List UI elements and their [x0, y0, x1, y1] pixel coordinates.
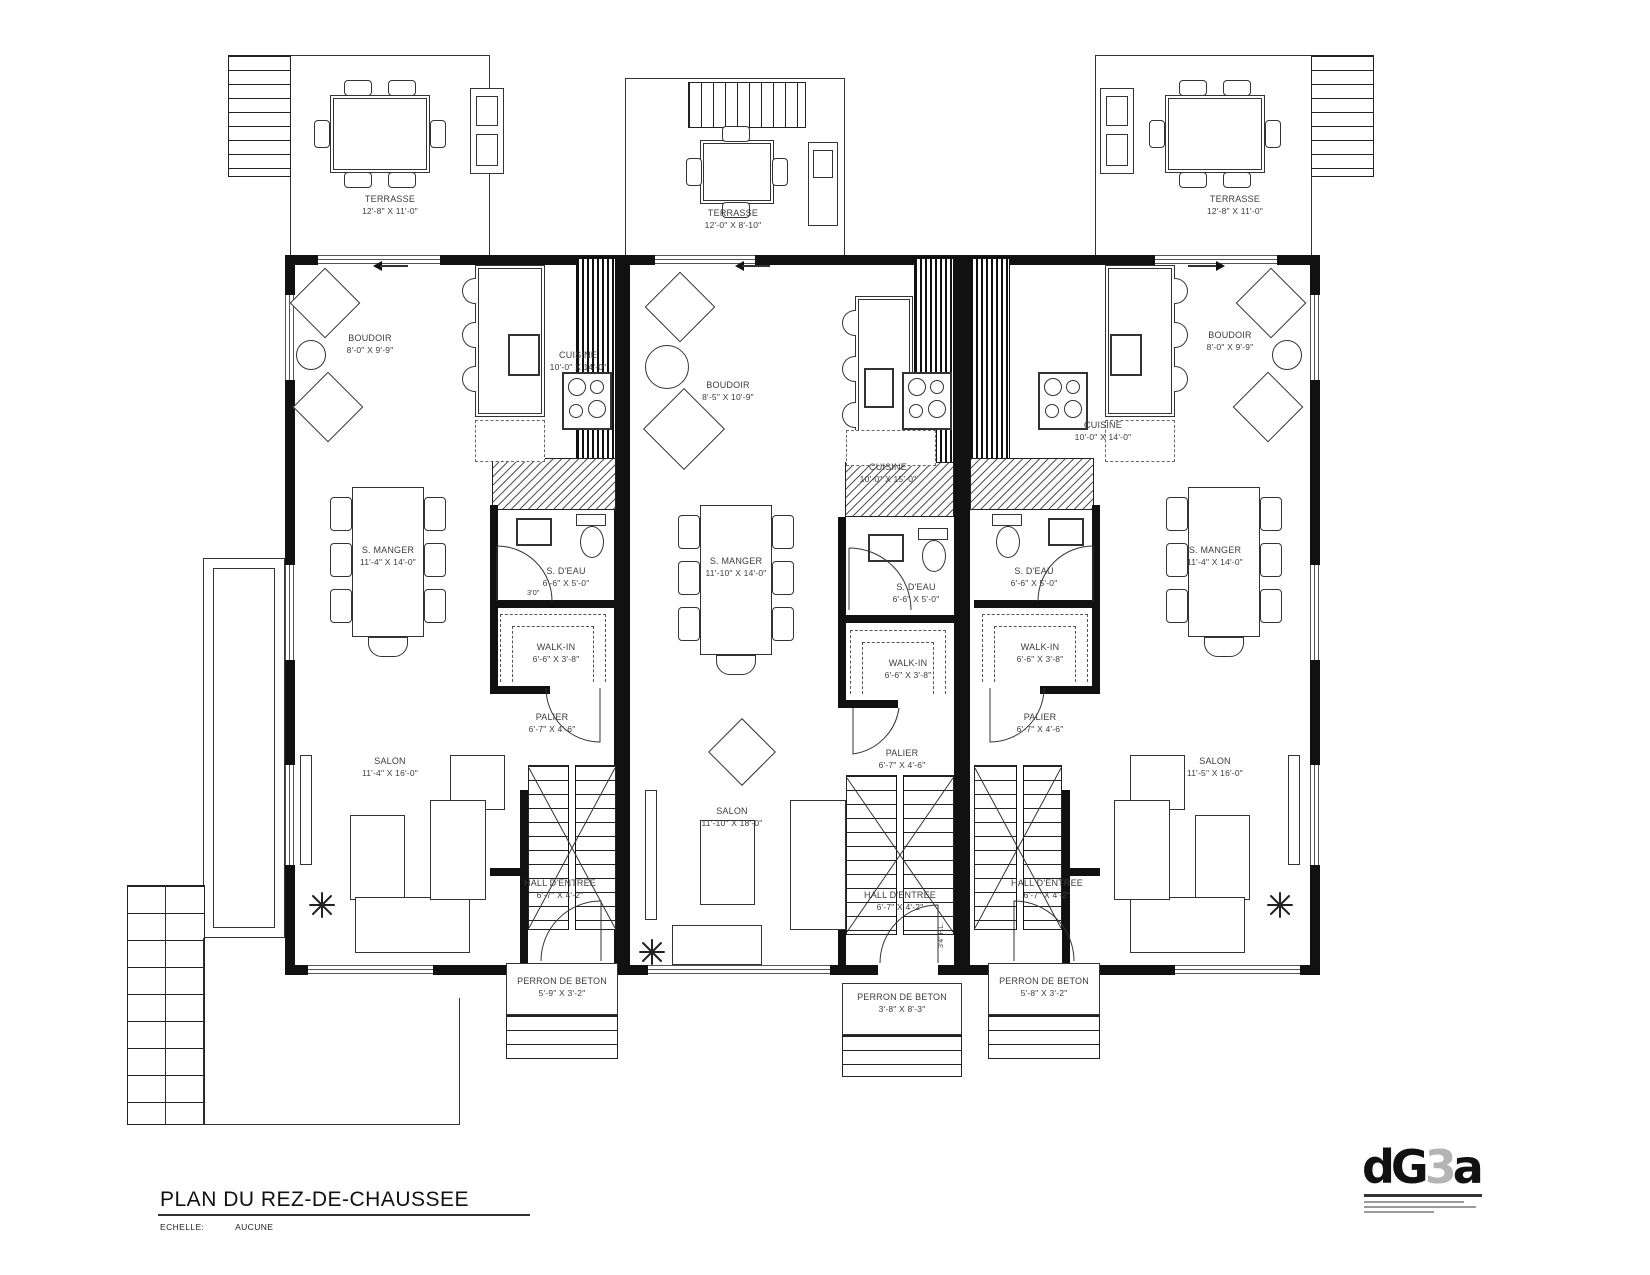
terrace-3-bbq-detail: [1106, 96, 1128, 126]
side-deck-inner: [213, 568, 275, 928]
title-underline: [158, 1214, 530, 1216]
window-right-2: [1310, 565, 1320, 660]
u1-burner: [568, 378, 586, 396]
perron-u1-steps: [506, 1015, 618, 1059]
terrace-2-table: [700, 140, 774, 204]
logo-address-lines: [1364, 1201, 1482, 1213]
perron-u2-steps: [842, 1035, 962, 1077]
u3-stool: [1174, 278, 1188, 304]
u2-door-note: 3'4" P.L.: [938, 923, 945, 948]
terrace-3-chair: [1149, 120, 1165, 148]
label-u1-hall: HALL D'ENTREE 6'-7" X 4'-2": [524, 878, 596, 901]
u2-dining-chair: [716, 655, 756, 675]
u3-toilet-tank: [992, 514, 1022, 526]
terrace-1-chair: [430, 120, 446, 148]
u1-toilet-tank: [576, 514, 606, 526]
u2-coffee-table: [700, 820, 755, 905]
party-wall-1: [614, 255, 630, 975]
terrace-2-stairs: [688, 82, 806, 128]
label-u2-palier: PALIER 6'-7" X 4'-6": [879, 748, 926, 771]
label-u1-walkin: WALK-IN 6'-6" X 3'-8": [533, 642, 580, 665]
u2-sofa-a: [790, 800, 846, 930]
label-u2-perron: PERRON DE BETON 3'-8" X 8'-3": [857, 992, 947, 1015]
u2-dining-chair: [772, 607, 794, 641]
walkway-line-v: [459, 998, 460, 1125]
label-u3-boudoir: BOUDOIR 8'-0" X 9'-9": [1207, 330, 1254, 353]
u3-stair-up-strip: [970, 258, 1010, 465]
u1-wall-sdeau-bottom: [490, 600, 616, 608]
label-u2-salon: SALON 11'-10" X 18'-0": [702, 806, 763, 829]
label-u2-cuisine: CUISINE 10'-0" X 15'-0": [860, 462, 917, 485]
u2-toilet-bowl: [922, 540, 946, 572]
u3-coffee-table: [1195, 815, 1250, 900]
u1-sofa-a: [355, 897, 470, 953]
u3-burner: [1044, 378, 1062, 396]
u2-armchair: [645, 272, 716, 343]
u2-plant: [640, 940, 664, 964]
u3-burner: [1064, 400, 1082, 418]
label-terrace-2: TERRASSE 12'-0" X 8'-10": [705, 208, 762, 231]
u1-island-sink: [508, 334, 540, 376]
u1-side-table: [296, 340, 326, 370]
terrace-3-table: [1165, 95, 1265, 173]
u2-dining-chair: [772, 561, 794, 595]
label-terrace-3: TERRASSE 12'-8" X 11'-0": [1207, 194, 1263, 217]
label-u1-door-note: 3'0": [527, 588, 539, 597]
u3-stair-landing: [970, 458, 1094, 510]
u2-wall-sdeau-left: [838, 517, 846, 617]
label-u3-hall: HALL D'ENTREE 6'-7" X 4'-2": [1011, 878, 1083, 901]
u2-sofa-b: [672, 925, 762, 965]
label-u2-hall: HALL D'ENTREE 6'-7" X 4'-2": [864, 890, 936, 913]
u1-dining-chair: [330, 497, 352, 531]
label-u3-sdeau: S. D'EAU 6'-6" X 5'-0": [1011, 566, 1058, 589]
u1-dining-chair: [424, 589, 446, 623]
u1-stairs-rail: [568, 765, 576, 930]
entry-gap-u2: [878, 965, 938, 975]
terrace-3-chair: [1223, 80, 1251, 96]
u2-burner: [909, 404, 923, 418]
label-u3-smanger: S. MANGER 11'-4" X 14'-0": [1187, 545, 1243, 568]
u1-dining-chair: [424, 543, 446, 577]
u3-dining-chair: [1166, 543, 1188, 577]
perron-u3-steps: [988, 1015, 1100, 1059]
page-title: PLAN DU REZ-DE-CHAUSSEE: [160, 1188, 469, 1212]
u1-armchair: [293, 372, 364, 443]
u3-tv-unit: [1288, 755, 1300, 865]
window-bottom-u2: [648, 965, 830, 975]
u3-sofa-a: [1130, 897, 1245, 953]
u1-stair-landing: [492, 458, 616, 510]
u1-dining-chair: [424, 497, 446, 531]
u1-wall-sdeau-left: [490, 505, 498, 605]
terrace-1-chair: [388, 172, 416, 188]
terrace-3-chair: [1265, 120, 1281, 148]
u3-stool: [1174, 322, 1188, 348]
u3-dining-chair: [1260, 589, 1282, 623]
u2-island-sink: [864, 368, 894, 408]
window-left-3: [285, 765, 295, 865]
label-u1-boudoir: BOUDOIR 8'-0" X 9'-9": [347, 333, 394, 356]
label-u1-cuisine: CUISINE 10'-0" X 14'-0": [550, 350, 607, 373]
label-u3-salon: SALON 11'-5" X 16'-0": [1187, 756, 1243, 779]
site-stairs-rail: [165, 885, 166, 1125]
label-u2-boudoir: BOUDOIR 8'-5" X 10'-9": [702, 380, 754, 403]
u2-burner: [928, 400, 946, 418]
u1-stool: [462, 322, 476, 348]
u3-island-sink: [1110, 334, 1142, 376]
scale-row: ECHELLE: AUCUNE: [160, 1222, 273, 1232]
u1-burner: [588, 400, 606, 418]
u2-toilet-tank: [918, 528, 948, 540]
terrace-2-bbq-detail: [813, 150, 833, 178]
u2-dining-chair: [772, 515, 794, 549]
u1-armchair: [290, 268, 361, 339]
u1-coffee-table: [350, 815, 405, 900]
terrace-1-bbq-detail: [476, 96, 498, 126]
u3-wall-sdeau-right: [1092, 505, 1100, 605]
u3-plant: [1268, 893, 1292, 917]
label-u1-sdeau: S. D'EAU 6'-6" X 5'-0": [543, 566, 590, 589]
u1-plant: [310, 893, 334, 917]
u1-stool: [462, 366, 476, 392]
label-terrace-1: TERRASSE 12'-8" X 11'-0": [362, 194, 418, 217]
u3-toilet-bowl: [996, 526, 1020, 558]
u3-armchair: [1236, 268, 1307, 339]
scale-value: AUCUNE: [235, 1222, 273, 1232]
u3-wall-sdeau-bottom: [974, 600, 1100, 608]
u1-sink: [516, 518, 552, 546]
u3-wall-walkin-right: [1092, 608, 1100, 694]
patio-arrow-line-u1: [380, 265, 408, 267]
u3-armchair: [1233, 372, 1304, 443]
u2-wall-walkin-bottom: [838, 700, 898, 708]
terrace-2-chair: [686, 158, 702, 186]
u3-sink: [1048, 518, 1084, 546]
terrace-3-bbq-detail: [1106, 134, 1128, 166]
label-u1-smanger: S. MANGER 11'-4" X 14'-0": [360, 545, 416, 568]
floor-plan-canvas: TERRASSE 12'-8" X 11'-0" TERRASSE 12'-0"…: [0, 0, 1650, 1275]
terrace-3-stairs: [1311, 55, 1374, 177]
firm-logo: dG3a: [1362, 1140, 1480, 1194]
u1-counter: [475, 420, 545, 462]
u3-wall-walkin-bottom: [1040, 686, 1100, 694]
u2-stool: [842, 356, 856, 382]
terrace-2-chair: [722, 126, 750, 142]
terrace-1-table: [330, 95, 430, 173]
u2-sink: [868, 534, 904, 562]
terrace-3-chair: [1223, 172, 1251, 188]
terrace-1-chair: [344, 80, 372, 96]
label-u1-salon: SALON 11'-4" X 16'-0": [362, 756, 418, 779]
u1-dining-chair: [368, 637, 408, 657]
u2-salon-armchair: [708, 718, 776, 786]
u3-wall-hall-top: [1062, 868, 1100, 876]
u2-stool: [842, 310, 856, 336]
label-u2-walkin: WALK-IN 6'-6" X 3'-8": [885, 658, 932, 681]
u2-dining-table: [700, 505, 772, 655]
u2-dining-chair: [678, 607, 700, 641]
u3-burner: [1066, 380, 1080, 394]
walkway-line-v2: [203, 938, 204, 1125]
party-wall-2: [954, 255, 970, 975]
site-stairs: [127, 885, 205, 1125]
terrace-3-chair: [1179, 80, 1207, 96]
patio-arrow-line-u3: [1188, 265, 1216, 267]
u2-burner: [930, 380, 944, 394]
label-u3-palier: PALIER 6'-7" X 4'-6": [1017, 712, 1064, 735]
u2-wall-sdeau-bottom: [838, 615, 954, 623]
u1-dining-chair: [330, 589, 352, 623]
scale-label: ECHELLE:: [160, 1222, 204, 1232]
patio-arrow-line-u2: [742, 265, 770, 267]
u3-stairs-rail: [1016, 765, 1024, 930]
u2-dining-chair: [678, 561, 700, 595]
label-u1-palier: PALIER 6'-7" X 4'-6": [529, 712, 576, 735]
u2-tv-unit: [645, 790, 657, 920]
window-right-3: [1310, 765, 1320, 865]
walkway-line-h: [203, 1124, 460, 1125]
terrace-1-stairs: [228, 55, 291, 177]
u1-dining-chair: [330, 543, 352, 577]
u3-stool: [1174, 366, 1188, 392]
u3-burner: [1045, 404, 1059, 418]
u1-wall-hall-top: [490, 868, 528, 876]
u1-tv-unit: [300, 755, 312, 865]
u1-sofa-b: [430, 800, 486, 900]
u1-toilet-bowl: [580, 526, 604, 558]
u2-side-table: [645, 345, 689, 389]
window-bottom-u1: [308, 965, 433, 975]
logo-rule: [1364, 1194, 1482, 1197]
terrace-1-chair: [344, 172, 372, 188]
u1-burner: [590, 380, 604, 394]
terrace-2-chair: [772, 158, 788, 186]
u2-stool: [842, 402, 856, 428]
u3-dining-chair: [1260, 497, 1282, 531]
patio-arrow-u3: [1216, 261, 1230, 271]
label-u2-sdeau: S. D'EAU 6'-6" X 5'-0": [893, 582, 940, 605]
u2-counter: [846, 430, 936, 466]
window-left-2: [285, 565, 295, 660]
u3-dining-chair: [1166, 497, 1188, 531]
u3-dining-chair: [1204, 637, 1244, 657]
window-right-1: [1310, 295, 1320, 380]
u3-side-table: [1272, 340, 1302, 370]
u2-burner: [908, 378, 926, 396]
u2-dining-chair: [678, 515, 700, 549]
label-u3-perron: PERRON DE BETON 5'-8" X 3'-2": [999, 976, 1089, 999]
label-u3-walkin: WALK-IN 6'-6" X 3'-8": [1017, 642, 1064, 665]
label-u3-cuisine: CUISINE 10'-0" X 14'-0": [1075, 420, 1132, 443]
terrace-1-bbq-detail: [476, 134, 498, 166]
u1-stool: [462, 278, 476, 304]
terrace-3-chair: [1179, 172, 1207, 188]
label-u1-perron: PERRON DE BETON 5'-9" X 3'-2": [517, 976, 607, 999]
window-bottom-u3: [1175, 965, 1300, 975]
u3-sofa-b: [1114, 800, 1170, 900]
label-u2-smanger: S. MANGER 11'-10" X 14'-0": [706, 556, 767, 579]
u1-burner: [569, 404, 583, 418]
terrace-1-chair: [314, 120, 330, 148]
terrace-1-chair: [388, 80, 416, 96]
u3-dining-chair: [1166, 589, 1188, 623]
u2-wall-walkin-left: [838, 623, 846, 708]
u1-wall-walkin-left: [490, 608, 498, 694]
u3-dining-chair: [1260, 543, 1282, 577]
u1-wall-walkin-bottom: [490, 686, 550, 694]
